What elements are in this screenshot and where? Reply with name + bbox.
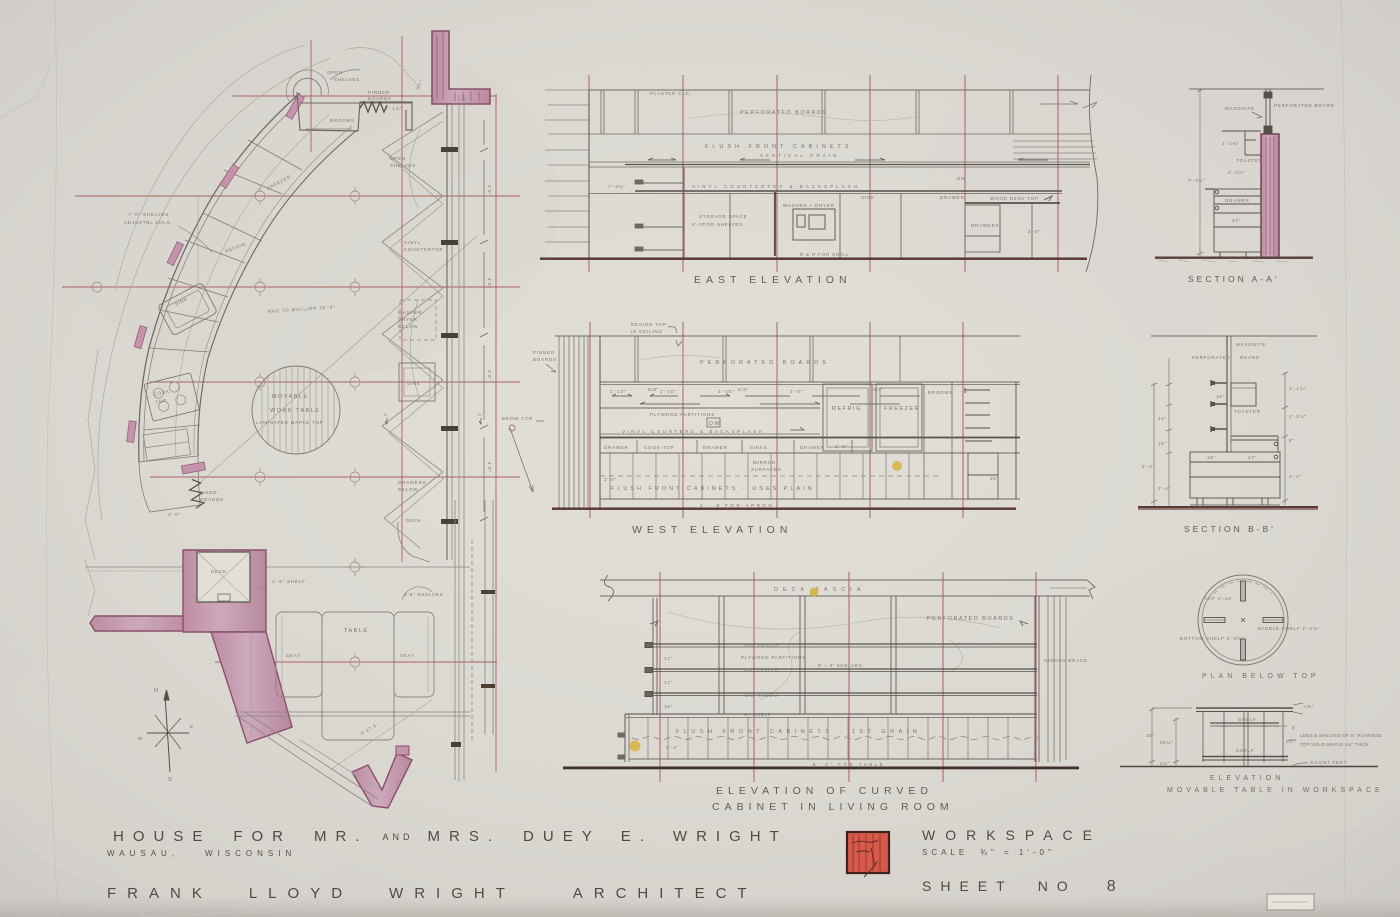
svg-text:DRAWERS: DRAWERS bbox=[398, 480, 426, 485]
svg-text:PLYWOOD PARTITIONS: PLYWOOD PARTITIONS bbox=[650, 412, 715, 417]
svg-text:12": 12" bbox=[664, 656, 673, 661]
svg-text:WORK TABLE: WORK TABLE bbox=[270, 408, 321, 414]
svg-text:DRAWER: DRAWER bbox=[800, 445, 825, 450]
svg-text:PERFORATED BOARD: PERFORATED BOARD bbox=[1274, 103, 1334, 108]
svg-text:BROOMS: BROOMS bbox=[928, 390, 953, 395]
svg-text:DRYER: DRYER bbox=[398, 317, 418, 322]
svg-text:BOARDS: BOARDS bbox=[533, 357, 557, 362]
svg-text:1'-10": 1'-10" bbox=[660, 389, 676, 394]
svg-text:12": 12" bbox=[1158, 416, 1167, 421]
svg-text:LEGS & SHELVES OF ¾" PLYWOOD: LEGS & SHELVES OF ¾" PLYWOOD bbox=[1300, 733, 1382, 738]
svg-text:7'-0" SHELVES: 7'-0" SHELVES bbox=[128, 212, 169, 217]
svg-text:PERFORATED BOARDS: PERFORATED BOARDS bbox=[700, 360, 830, 366]
svg-text:E: E bbox=[190, 724, 194, 729]
svg-text:DRAWER: DRAWER bbox=[940, 195, 965, 200]
svg-text:SINK: SINK bbox=[407, 381, 421, 386]
svg-text:30": 30" bbox=[1146, 733, 1155, 738]
svg-text:COOK-TOP: COOK-TOP bbox=[644, 445, 674, 450]
svg-text:MIRROR: MIRROR bbox=[753, 460, 776, 465]
svg-text:2'-0": 2'-0" bbox=[790, 389, 803, 394]
svg-text:BROOMS: BROOMS bbox=[330, 118, 355, 123]
svg-text:A: A bbox=[384, 412, 388, 417]
svg-text:PINNED: PINNED bbox=[368, 90, 390, 95]
svg-text:24": 24" bbox=[1248, 455, 1257, 460]
svg-text:COUNTERTOP: COUNTERTOP bbox=[404, 247, 443, 252]
svg-text:SHELVES: SHELVES bbox=[390, 163, 416, 168]
svg-text:PINNED: PINNED bbox=[533, 350, 555, 355]
svg-text:2'-4": 2'-4" bbox=[666, 745, 679, 750]
svg-text:SCALE¾" = 1'-0": SCALE¾" = 1'-0" bbox=[922, 848, 1055, 857]
svg-text:7'-1¾": 7'-1¾" bbox=[385, 106, 403, 111]
svg-text:LAMINATED MAPLE TOP: LAMINATED MAPLE TOP bbox=[256, 420, 323, 425]
svg-text:WORKSPACE: WORKSPACE bbox=[922, 827, 1102, 843]
svg-text:12": 12" bbox=[664, 680, 673, 685]
svg-text:DW: DW bbox=[957, 176, 966, 181]
svg-text:DRAWER: DRAWER bbox=[604, 445, 629, 450]
svg-text:VINYL COUNTERS & BACKSPLASH: VINYL COUNTERS & BACKSPLASH bbox=[622, 429, 764, 434]
svg-text:2'-4": 2'-4" bbox=[1289, 474, 1302, 479]
svg-text:FREEZER: FREEZER bbox=[884, 406, 920, 412]
svg-text:TOASTER: TOASTER bbox=[1234, 409, 1261, 414]
svg-text:5/8": 5/8" bbox=[738, 387, 749, 392]
svg-text:IN CEILING: IN CEILING bbox=[631, 329, 663, 334]
svg-text:CABINET IN LIVING ROOM: CABINET IN LIVING ROOM bbox=[712, 801, 954, 813]
svg-text:PERFORATED: PERFORATED bbox=[1192, 355, 1230, 360]
svg-text:OPEN: OPEN bbox=[327, 70, 343, 75]
svg-text:VINYL COUNTERTOP & BACKS: VINYL COUNTERTOP & BACKSPLASH bbox=[692, 184, 860, 189]
svg-text:FLUSH FRONT CABINETS: FLUSH FRONT CABINETS bbox=[705, 144, 852, 150]
svg-text:WEST ELEVATION: WEST ELEVATION bbox=[632, 524, 792, 536]
svg-text:R & R FOR GRILL: R & R FOR GRILL bbox=[800, 252, 849, 257]
svg-text:BOARD: BOARD bbox=[1240, 355, 1260, 360]
svg-text:FIXED: FIXED bbox=[200, 490, 217, 495]
svg-text:26": 26" bbox=[990, 476, 999, 481]
svg-text:OPEN: OPEN bbox=[390, 156, 406, 161]
svg-text:15": 15" bbox=[1158, 441, 1167, 446]
svg-text:W: W bbox=[138, 736, 143, 741]
svg-text:24": 24" bbox=[1232, 218, 1241, 223]
svg-text:DRAWER: DRAWER bbox=[703, 445, 728, 450]
svg-text:PLYWOOD PARTITIONS: PLYWOOD PARTITIONS bbox=[741, 655, 806, 660]
svg-text:A': A' bbox=[478, 412, 483, 417]
svg-text:TOP SOLID MAPLE 1¾" THICK: TOP SOLID MAPLE 1¾" THICK bbox=[1300, 742, 1369, 747]
svg-text:SHELF: SHELF bbox=[1238, 717, 1257, 722]
svg-text:BOARDS: BOARDS bbox=[200, 497, 224, 502]
svg-text:1⅜": 1⅜" bbox=[1304, 704, 1314, 709]
svg-text:4'0": 4'0" bbox=[487, 278, 492, 289]
svg-text:MOVABLE: MOVABLE bbox=[272, 394, 309, 400]
svg-text:5/8" FASCIA: 5/8" FASCIA bbox=[744, 668, 778, 673]
svg-text:SECTION A-A': SECTION A-A' bbox=[1188, 274, 1279, 284]
svg-text:3'-0": 3'-0" bbox=[168, 512, 181, 517]
svg-text:SHELVES: SHELVES bbox=[334, 77, 360, 82]
svg-text:TOP 4'-24": TOP 4'-24" bbox=[1204, 596, 1234, 601]
svg-text:2'-4": 2'-4" bbox=[1158, 486, 1171, 491]
svg-text:7'-3¾": 7'-3¾" bbox=[608, 184, 626, 189]
svg-text:FRANKLLOYDWRIGHTARCHITECT: FRANKLLOYDWRIGHTARCHITECT bbox=[107, 885, 758, 902]
svg-text:SINKS: SINKS bbox=[750, 445, 768, 450]
svg-text:7'-3¾": 7'-3¾" bbox=[1188, 178, 1206, 183]
svg-text:3'-0": 3'-0" bbox=[1028, 229, 1041, 234]
svg-text:MOVABLE TABLE IN WORKSPACE: MOVABLE TABLE IN WORKSPACE bbox=[1167, 787, 1384, 794]
svg-text:ELEVATION OF CURVED: ELEVATION OF CURVED bbox=[716, 785, 933, 797]
svg-text:FOR SHELVES: FOR SHELVES bbox=[703, 222, 743, 227]
svg-text:REFRIG: REFRIG bbox=[832, 406, 862, 412]
svg-text:18": 18" bbox=[1207, 455, 1216, 460]
svg-text:MASONITE: MASONITE bbox=[1236, 342, 1266, 347]
svg-text:4 - 8 FOR APRON: 4 - 8 FOR APRON bbox=[700, 503, 774, 508]
svg-text:1'-2⅞": 1'-2⅞" bbox=[1289, 414, 1307, 419]
svg-text:DW: DW bbox=[709, 421, 721, 427]
svg-text:2'-8": 2'-8" bbox=[835, 444, 848, 449]
svg-text:WASHER + DRYER: WASHER + DRYER bbox=[783, 203, 835, 208]
svg-text:4'0": 4'0" bbox=[487, 462, 492, 473]
svg-text:DECK: DECK bbox=[406, 518, 422, 523]
svg-text:BOTTOM SHELF 3'-6½": BOTTOM SHELF 3'-6½" bbox=[1180, 635, 1244, 641]
svg-text:BELOW: BELOW bbox=[398, 324, 418, 329]
svg-text:26¾": 26¾" bbox=[1160, 740, 1174, 745]
svg-text:DECK FASCIA: DECK FASCIA bbox=[774, 587, 865, 593]
svg-text:8": 8" bbox=[1292, 725, 1298, 730]
svg-text:3-8" SHELVES: 3-8" SHELVES bbox=[404, 592, 443, 597]
svg-text:8": 8" bbox=[1289, 438, 1295, 443]
svg-text:ADJUSTBL SHLG: ADJUSTBL SHLG bbox=[124, 220, 171, 225]
svg-text:WOOD DESK TOP: WOOD DESK TOP bbox=[990, 196, 1039, 201]
svg-text:DRAWERS: DRAWERS bbox=[971, 223, 999, 228]
svg-text:ELEVATION: ELEVATION bbox=[1210, 775, 1284, 782]
svg-text:DESIGN TOP: DESIGN TOP bbox=[631, 322, 667, 327]
svg-text:BROW CTR: BROW CTR bbox=[502, 416, 533, 421]
svg-text:1'-6" SHELF: 1'-6" SHELF bbox=[272, 579, 306, 584]
svg-text:SEAT: SEAT bbox=[286, 653, 301, 658]
svg-text:TABLE: TABLE bbox=[344, 628, 369, 634]
svg-text:SECTION B-B': SECTION B-B' bbox=[1184, 524, 1276, 534]
svg-text:5/8" FASCIA: 5/8" FASCIA bbox=[745, 643, 779, 648]
svg-text:1'-1⅞": 1'-1⅞" bbox=[1289, 386, 1307, 391]
svg-text:8'-0" FOR TABLE: 8'-0" FOR TABLE bbox=[813, 762, 885, 767]
svg-text:EAST ELEVATION: EAST ELEVATION bbox=[694, 274, 852, 286]
svg-text:2¾": 2¾" bbox=[1160, 761, 1170, 766]
svg-text:MASONITE: MASONITE bbox=[1225, 106, 1255, 111]
svg-text:DECK: DECK bbox=[211, 569, 227, 574]
svg-text:FLUSH FRONT CABINETS -: FLUSH FRONT CABINETS - 1ST GRAIN bbox=[676, 729, 921, 735]
svg-text:20": 20" bbox=[1286, 739, 1295, 744]
svg-text:SURFACES: SURFACES bbox=[751, 467, 782, 472]
svg-text:SEAT: SEAT bbox=[400, 653, 415, 658]
svg-text:5'-4": 5'-4" bbox=[1142, 464, 1155, 469]
svg-text:VINYL: VINYL bbox=[404, 240, 421, 245]
svg-text:STORAGE SPACE: STORAGE SPACE bbox=[699, 214, 748, 219]
svg-text:5/8": 5/8" bbox=[648, 387, 659, 392]
svg-text:MIDDLE SHELF 2'-1¾": MIDDLE SHELF 2'-1¾" bbox=[1258, 626, 1320, 631]
svg-text:1'-10": 1'-10" bbox=[718, 389, 734, 394]
svg-text:FLUSH FRONT CABINETS -: FLUSH FRONT CABINETS - USES PLAIN bbox=[611, 486, 815, 492]
svg-text:TOASTER: TOASTER bbox=[1236, 158, 1263, 163]
svg-text:WASHER-: WASHER- bbox=[398, 310, 425, 315]
svg-text:N: N bbox=[154, 688, 159, 694]
svg-text:1'-10": 1'-10" bbox=[610, 389, 626, 394]
svg-text:PERFORATED BOARDS: PERFORATED BOARDS bbox=[927, 616, 1014, 622]
svg-text:15": 15" bbox=[664, 704, 673, 709]
svg-text:BELOW: BELOW bbox=[398, 487, 418, 492]
svg-text:HINGED BRACE: HINGED BRACE bbox=[1044, 658, 1088, 663]
svg-text:2'-8": 2'-8" bbox=[604, 477, 617, 482]
svg-text:S: S bbox=[168, 777, 173, 783]
svg-text:PLASTER CLG.: PLASTER CLG. bbox=[650, 91, 692, 96]
svg-text:VERTICAL GRAIN: VERTICAL GRAIN bbox=[760, 153, 839, 158]
svg-text:DRAWER: DRAWER bbox=[1225, 198, 1250, 203]
svg-text:1'-2⅜": 1'-2⅜" bbox=[1222, 141, 1240, 146]
svg-text:SINK: SINK bbox=[861, 195, 875, 200]
svg-text:16": 16" bbox=[1216, 394, 1225, 399]
svg-text:5/8" FASCIA: 5/8" FASCIA bbox=[745, 693, 779, 698]
svg-text:PLAN BELOW TOP: PLAN BELOW TOP bbox=[1202, 673, 1320, 680]
svg-text:4'0": 4'0" bbox=[487, 370, 492, 381]
svg-text:SHELF: SHELF bbox=[1236, 748, 1255, 753]
svg-text:BOARDS: BOARDS bbox=[368, 96, 392, 101]
svg-text:SILENT FEET: SILENT FEET bbox=[1310, 760, 1347, 765]
svg-text:R = 8' SHELVES: R = 8' SHELVES bbox=[818, 663, 863, 668]
svg-text:4'0": 4'0" bbox=[487, 185, 492, 196]
svg-text:2'-3⅞": 2'-3⅞" bbox=[1228, 170, 1246, 175]
